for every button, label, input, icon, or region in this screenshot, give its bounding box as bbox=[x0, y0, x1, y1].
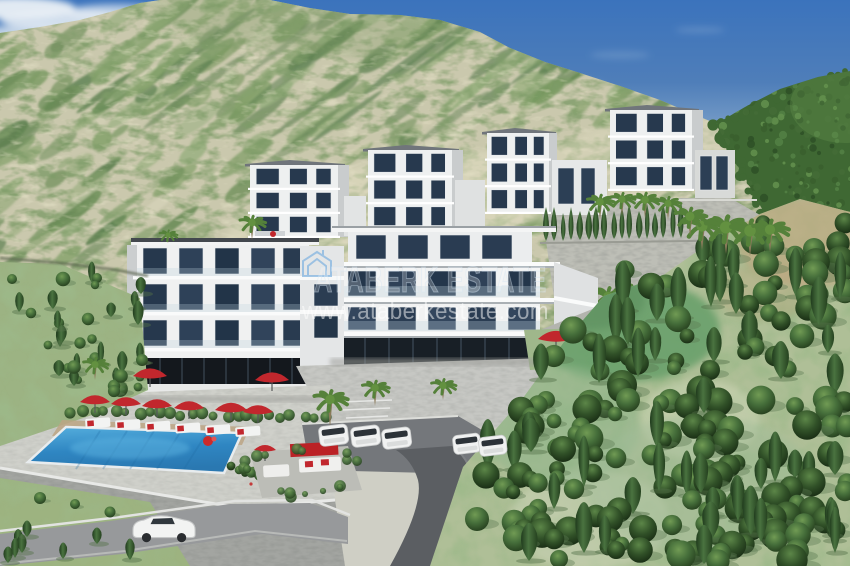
svg-text:www.ataberkestate.com: www.ataberkestate.com bbox=[301, 298, 549, 325]
svg-text:ATABERK ESTATE: ATABERK ESTATE bbox=[314, 259, 547, 300]
